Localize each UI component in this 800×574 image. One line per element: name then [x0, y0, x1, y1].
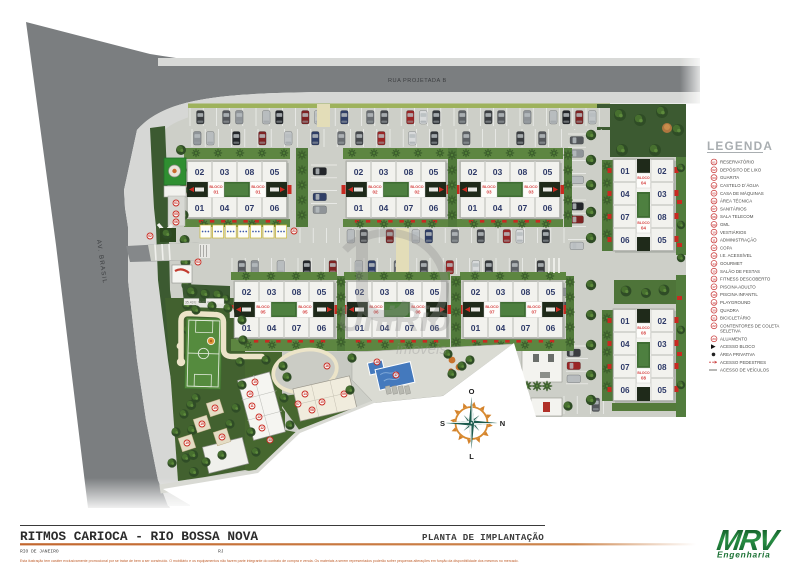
svg-text:03: 03 — [196, 260, 200, 264]
svg-text:12: 12 — [257, 415, 261, 419]
svg-text:BLOCO: BLOCO — [298, 305, 311, 309]
svg-text:02: 02 — [242, 287, 252, 297]
svg-text:08: 08 — [657, 363, 667, 372]
svg-text:19: 19 — [220, 435, 224, 439]
svg-text:05: 05 — [260, 310, 266, 315]
svg-text:04: 04 — [267, 323, 277, 333]
svg-text:ACESSO BLOCO: ACESSO BLOCO — [720, 344, 755, 349]
svg-text:07: 07 — [518, 203, 528, 213]
svg-text:12: 12 — [712, 246, 716, 250]
svg-text:GOURMET: GOURMET — [720, 261, 743, 266]
svg-text:03: 03 — [220, 167, 230, 177]
svg-text:VESTIÁRIOS: VESTIÁRIOS — [720, 230, 746, 235]
svg-text:BLOCO: BLOCO — [524, 185, 537, 189]
svg-text:07: 07 — [620, 363, 630, 372]
svg-text:02: 02 — [468, 167, 478, 177]
svg-text:01: 01 — [620, 317, 630, 326]
svg-text:01: 01 — [255, 190, 261, 195]
svg-text:08: 08 — [521, 287, 531, 297]
svg-text:06: 06 — [620, 236, 630, 245]
svg-text:04: 04 — [493, 203, 503, 213]
svg-text:01: 01 — [195, 203, 205, 213]
svg-text:COPA: COPA — [720, 245, 732, 250]
svg-text:03: 03 — [379, 167, 389, 177]
svg-text:BLOCO: BLOCO — [368, 185, 381, 189]
svg-text:SALÃO DE FESTAS: SALÃO DE FESTAS — [720, 269, 760, 274]
svg-text:BLOCO: BLOCO — [251, 185, 264, 189]
svg-text:RESERVATÓRIO: RESERVATÓRIO — [720, 160, 755, 165]
svg-text:L: L — [469, 452, 474, 461]
svg-text:N: N — [500, 419, 505, 428]
svg-text:Engenharia: Engenharia — [717, 550, 771, 560]
svg-text:07: 07 — [292, 323, 302, 333]
svg-text:08: 08 — [405, 287, 415, 297]
svg-text:01: 01 — [213, 190, 219, 195]
svg-text:04: 04 — [496, 323, 506, 333]
svg-text:05: 05 — [657, 236, 667, 245]
svg-text:22: 22 — [712, 324, 716, 328]
svg-text:01: 01 — [620, 167, 630, 176]
svg-text:08: 08 — [310, 408, 314, 412]
svg-text:BLOCO: BLOCO — [527, 305, 540, 309]
svg-text:BLOCO: BLOCO — [209, 185, 222, 189]
svg-text:21: 21 — [292, 229, 296, 233]
svg-text:06: 06 — [270, 203, 280, 213]
svg-text:08: 08 — [292, 287, 302, 297]
svg-text:CASA DE MÁQUINAS: CASA DE MÁQUINAS — [720, 191, 764, 196]
svg-text:QUADRA: QUADRA — [720, 308, 739, 313]
svg-text:02: 02 — [657, 167, 667, 176]
svg-text:13: 13 — [712, 254, 716, 258]
svg-text:07: 07 — [404, 203, 414, 213]
svg-text:05: 05 — [270, 167, 280, 177]
svg-text:21: 21 — [712, 316, 716, 320]
svg-text:23: 23 — [712, 337, 716, 341]
svg-text:08: 08 — [641, 376, 646, 381]
svg-text:08: 08 — [712, 215, 716, 219]
svg-text:BLOCO: BLOCO — [485, 305, 498, 309]
svg-text:06: 06 — [712, 199, 716, 203]
svg-text:FITNESS DESCOBERTO: FITNESS DESCOBERTO — [720, 277, 771, 282]
svg-text:PISCINA ADULTO: PISCINA ADULTO — [720, 284, 756, 289]
svg-text:02: 02 — [372, 190, 378, 195]
svg-text:04: 04 — [712, 184, 716, 188]
svg-text:PLAYGROUND: PLAYGROUND — [720, 300, 750, 305]
svg-text:16: 16 — [712, 277, 716, 281]
svg-text:18: 18 — [712, 293, 716, 297]
svg-text:04: 04 — [620, 340, 630, 349]
svg-text:01: 01 — [354, 203, 364, 213]
svg-text:GUARITA: GUARITA — [720, 175, 739, 180]
svg-text:05: 05 — [302, 310, 308, 315]
svg-text:05: 05 — [317, 287, 327, 297]
svg-text:ACESSO PEDESTRES: ACESSO PEDESTRES — [720, 360, 766, 365]
svg-text:11: 11 — [250, 404, 254, 408]
svg-text:11: 11 — [712, 238, 716, 242]
svg-text:01: 01 — [471, 323, 481, 333]
svg-text:06: 06 — [317, 323, 327, 333]
svg-text:08: 08 — [404, 167, 414, 177]
svg-text:08: 08 — [245, 167, 255, 177]
svg-text:SELETIVA: SELETIVA — [720, 329, 741, 334]
svg-text:15: 15 — [253, 380, 257, 384]
svg-text:07: 07 — [620, 213, 630, 222]
svg-text:09: 09 — [712, 223, 716, 227]
svg-text:20: 20 — [712, 309, 716, 313]
svg-text:05: 05 — [430, 287, 440, 297]
svg-text:03: 03 — [712, 176, 716, 180]
svg-text:17: 17 — [712, 285, 716, 289]
svg-text:04: 04 — [641, 226, 646, 231]
svg-text:RJ: RJ — [218, 549, 224, 555]
svg-text:02: 02 — [712, 168, 716, 172]
svg-text:BLOCO: BLOCO — [482, 185, 495, 189]
svg-text:03: 03 — [267, 287, 277, 297]
svg-text:18: 18 — [375, 360, 379, 364]
svg-text:07: 07 — [521, 323, 531, 333]
svg-text:ADMINISTRAÇÃO: ADMINISTRAÇÃO — [720, 238, 757, 243]
svg-text:05: 05 — [712, 192, 716, 196]
svg-text:19: 19 — [213, 406, 217, 410]
svg-text:RITMOS CARIOCA - RIO BOSSA NOV: RITMOS CARIOCA - RIO BOSSA NOVA — [20, 529, 258, 544]
svg-text:BLOCO: BLOCO — [637, 371, 650, 375]
svg-text:19: 19 — [200, 422, 204, 426]
svg-text:10: 10 — [248, 392, 252, 396]
svg-text:I.E. ACESSÍVEL: I.E. ACESSÍVEL — [720, 253, 753, 258]
svg-text:19: 19 — [712, 301, 716, 305]
svg-text:03: 03 — [486, 190, 492, 195]
svg-text:03: 03 — [493, 167, 503, 177]
svg-text:05: 05 — [429, 167, 439, 177]
svg-text:03: 03 — [528, 190, 534, 195]
svg-text:04: 04 — [620, 190, 630, 199]
svg-text:SANITÁRIOS: SANITÁRIOS — [720, 206, 747, 211]
svg-text:02: 02 — [354, 167, 364, 177]
svg-text:RUA PROJETADA B: RUA PROJETADA B — [388, 78, 447, 84]
svg-text:04: 04 — [379, 203, 389, 213]
svg-text:07: 07 — [245, 203, 255, 213]
svg-text:05: 05 — [543, 167, 553, 177]
svg-text:09: 09 — [342, 392, 346, 396]
svg-text:16: 16 — [325, 364, 329, 368]
svg-text:CASTELO D´ÁGUA: CASTELO D´ÁGUA — [720, 183, 759, 188]
svg-text:17: 17 — [394, 373, 398, 377]
svg-text:01: 01 — [468, 203, 478, 213]
svg-text:04: 04 — [220, 203, 230, 213]
svg-text:07: 07 — [296, 402, 300, 406]
svg-text:ÁREA PRIVATIVA: ÁREA PRIVATIVA — [720, 352, 755, 357]
svg-text:imoveis: imoveis — [396, 341, 447, 358]
svg-text:07: 07 — [489, 310, 495, 315]
svg-text:01: 01 — [712, 160, 716, 164]
svg-text:02: 02 — [148, 234, 152, 238]
svg-text:06: 06 — [546, 323, 556, 333]
svg-text:03: 03 — [380, 287, 390, 297]
svg-text:19: 19 — [185, 441, 189, 445]
svg-text:14: 14 — [712, 262, 716, 266]
svg-text:02: 02 — [414, 190, 420, 195]
svg-text:08: 08 — [641, 331, 646, 336]
svg-text:BLOCO: BLOCO — [410, 185, 423, 189]
svg-text:DEPÓSITO DE LIXO: DEPÓSITO DE LIXO — [720, 167, 762, 172]
svg-text:PLANTA DE IMPLANTAÇÃO: PLANTA DE IMPLANTAÇÃO — [422, 532, 544, 543]
svg-text:ALUAMENTO: ALUAMENTO — [720, 336, 748, 341]
svg-text:10: 10 — [712, 231, 716, 235]
svg-text:RIO DE JANEIRO: RIO DE JANEIRO — [20, 549, 59, 555]
svg-text:BICICLETÁRIO: BICICLETÁRIO — [720, 316, 751, 321]
svg-text:01: 01 — [242, 323, 252, 333]
svg-text:LEGENDA: LEGENDA — [707, 139, 773, 153]
svg-text:S: S — [440, 419, 445, 428]
svg-text:SALA TELECOM: SALA TELECOM — [720, 214, 754, 219]
svg-text:04: 04 — [641, 181, 646, 186]
svg-text:10: 10 — [320, 400, 324, 404]
svg-text:03: 03 — [657, 340, 667, 349]
svg-text:14: 14 — [303, 392, 307, 396]
svg-text:15: 15 — [712, 270, 716, 274]
svg-text:Esta ilustração tem caráter ex: Esta ilustração tem caráter exclusivamen… — [20, 559, 519, 563]
svg-text:05: 05 — [546, 287, 556, 297]
svg-text:02: 02 — [657, 317, 667, 326]
svg-text:BLOCO: BLOCO — [637, 176, 650, 180]
svg-text:01: 01 — [174, 201, 178, 205]
svg-text:03: 03 — [496, 287, 506, 297]
svg-text:BLOCO: BLOCO — [637, 326, 650, 330]
svg-text:08: 08 — [518, 167, 528, 177]
svg-text:O: O — [469, 387, 475, 396]
svg-text:ÁREA TÉCNICA: ÁREA TÉCNICA — [720, 199, 752, 204]
svg-text:13: 13 — [268, 438, 272, 442]
svg-text:05: 05 — [657, 386, 667, 395]
svg-text:07: 07 — [712, 207, 716, 211]
svg-text:06: 06 — [429, 203, 439, 213]
svg-text:05: 05 — [174, 212, 178, 216]
svg-text:02: 02 — [195, 167, 205, 177]
svg-text:08: 08 — [657, 213, 667, 222]
svg-text:03: 03 — [657, 190, 667, 199]
svg-text:02: 02 — [471, 287, 481, 297]
svg-text:06: 06 — [543, 203, 553, 213]
svg-text:BLOCO: BLOCO — [256, 305, 269, 309]
svg-text:06: 06 — [174, 220, 178, 224]
svg-text:06: 06 — [620, 386, 630, 395]
svg-text:07: 07 — [531, 310, 537, 315]
svg-text:GML: GML — [720, 222, 730, 227]
svg-text:ACESSO DE VEÍCULOS: ACESSO DE VEÍCULOS — [720, 368, 769, 373]
svg-text:12: 12 — [260, 426, 264, 430]
svg-text:PISCINA INFANTIL: PISCINA INFANTIL — [720, 292, 758, 297]
svg-text:UniRio: UniRio — [338, 300, 451, 339]
svg-text:BLOCO: BLOCO — [637, 221, 650, 225]
